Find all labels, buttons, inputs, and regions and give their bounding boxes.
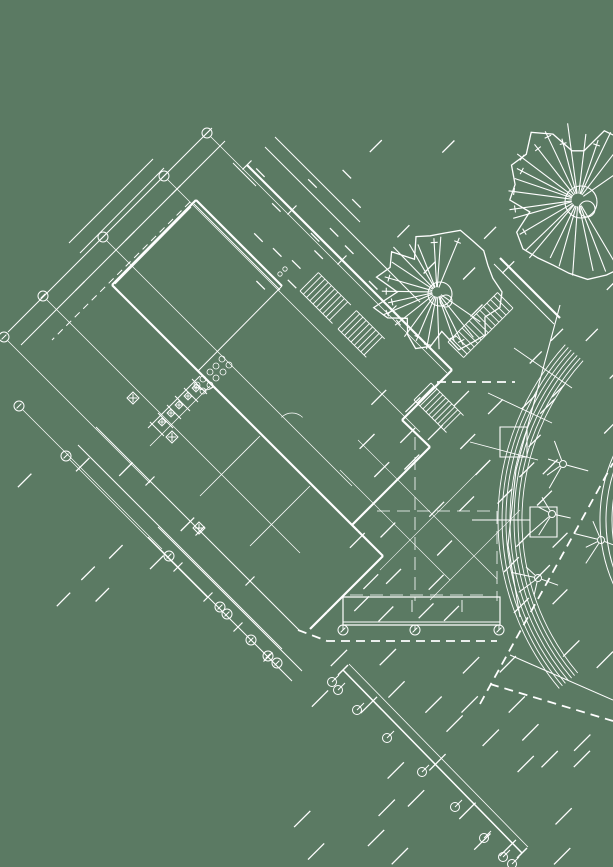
centerline-dashed bbox=[52, 202, 190, 340]
ticks bbox=[76, 161, 397, 662]
fence-line-2 bbox=[349, 664, 528, 847]
band-chord bbox=[508, 305, 560, 617]
boundary-dashed-poly bbox=[298, 630, 497, 641]
stairs bbox=[300, 273, 513, 433]
door-swings bbox=[196, 386, 303, 417]
fence-lines bbox=[338, 665, 527, 858]
architectural-drawing-canvas bbox=[0, 0, 613, 867]
fence-posts bbox=[328, 675, 520, 867]
column-markers bbox=[127, 392, 205, 534]
fixture-bowls bbox=[158, 384, 200, 426]
trees bbox=[374, 123, 613, 349]
boundary-dashed bbox=[437, 382, 613, 721]
interior-stubs bbox=[150, 386, 310, 546]
centerlines bbox=[350, 437, 497, 601]
dimension-lines bbox=[8, 128, 302, 681]
curved-band-inner bbox=[600, 435, 613, 600]
room-tag-glyph bbox=[278, 267, 287, 276]
plant-points bbox=[511, 441, 613, 596]
colonnade-rect bbox=[343, 597, 500, 625]
site-plan-svg bbox=[0, 0, 613, 867]
